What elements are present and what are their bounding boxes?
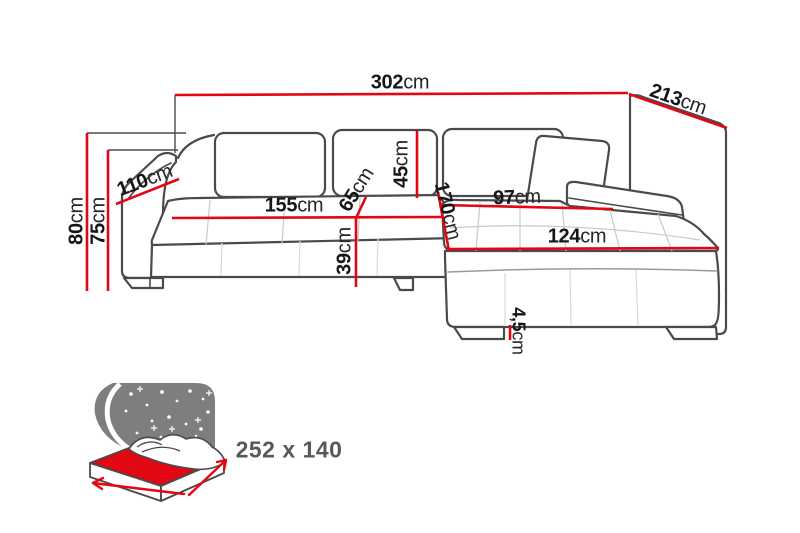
back-cushion-middle [333, 130, 437, 196]
extension-lines [87, 95, 186, 153]
sofa-leg [666, 327, 717, 339]
back-corner [178, 135, 214, 158]
sofa-leg [454, 327, 504, 339]
dim-line-seat-width [172, 217, 442, 218]
sofa-dimension-diagram: 302cm 213cm 80cm 75cm 110cm 155cm 45cm 6… [0, 0, 800, 533]
sofa-leg [124, 278, 163, 288]
diagram-canvas [0, 0, 800, 533]
dim-line-chaise-front-width [448, 248, 719, 249]
dim-line-total-width [175, 93, 628, 95]
back-cushion-left [215, 133, 325, 197]
sofa-leg [394, 278, 413, 290]
chaise-base [445, 251, 719, 327]
main-seat-front [151, 238, 458, 277]
sleeping-function-icon [90, 383, 226, 501]
